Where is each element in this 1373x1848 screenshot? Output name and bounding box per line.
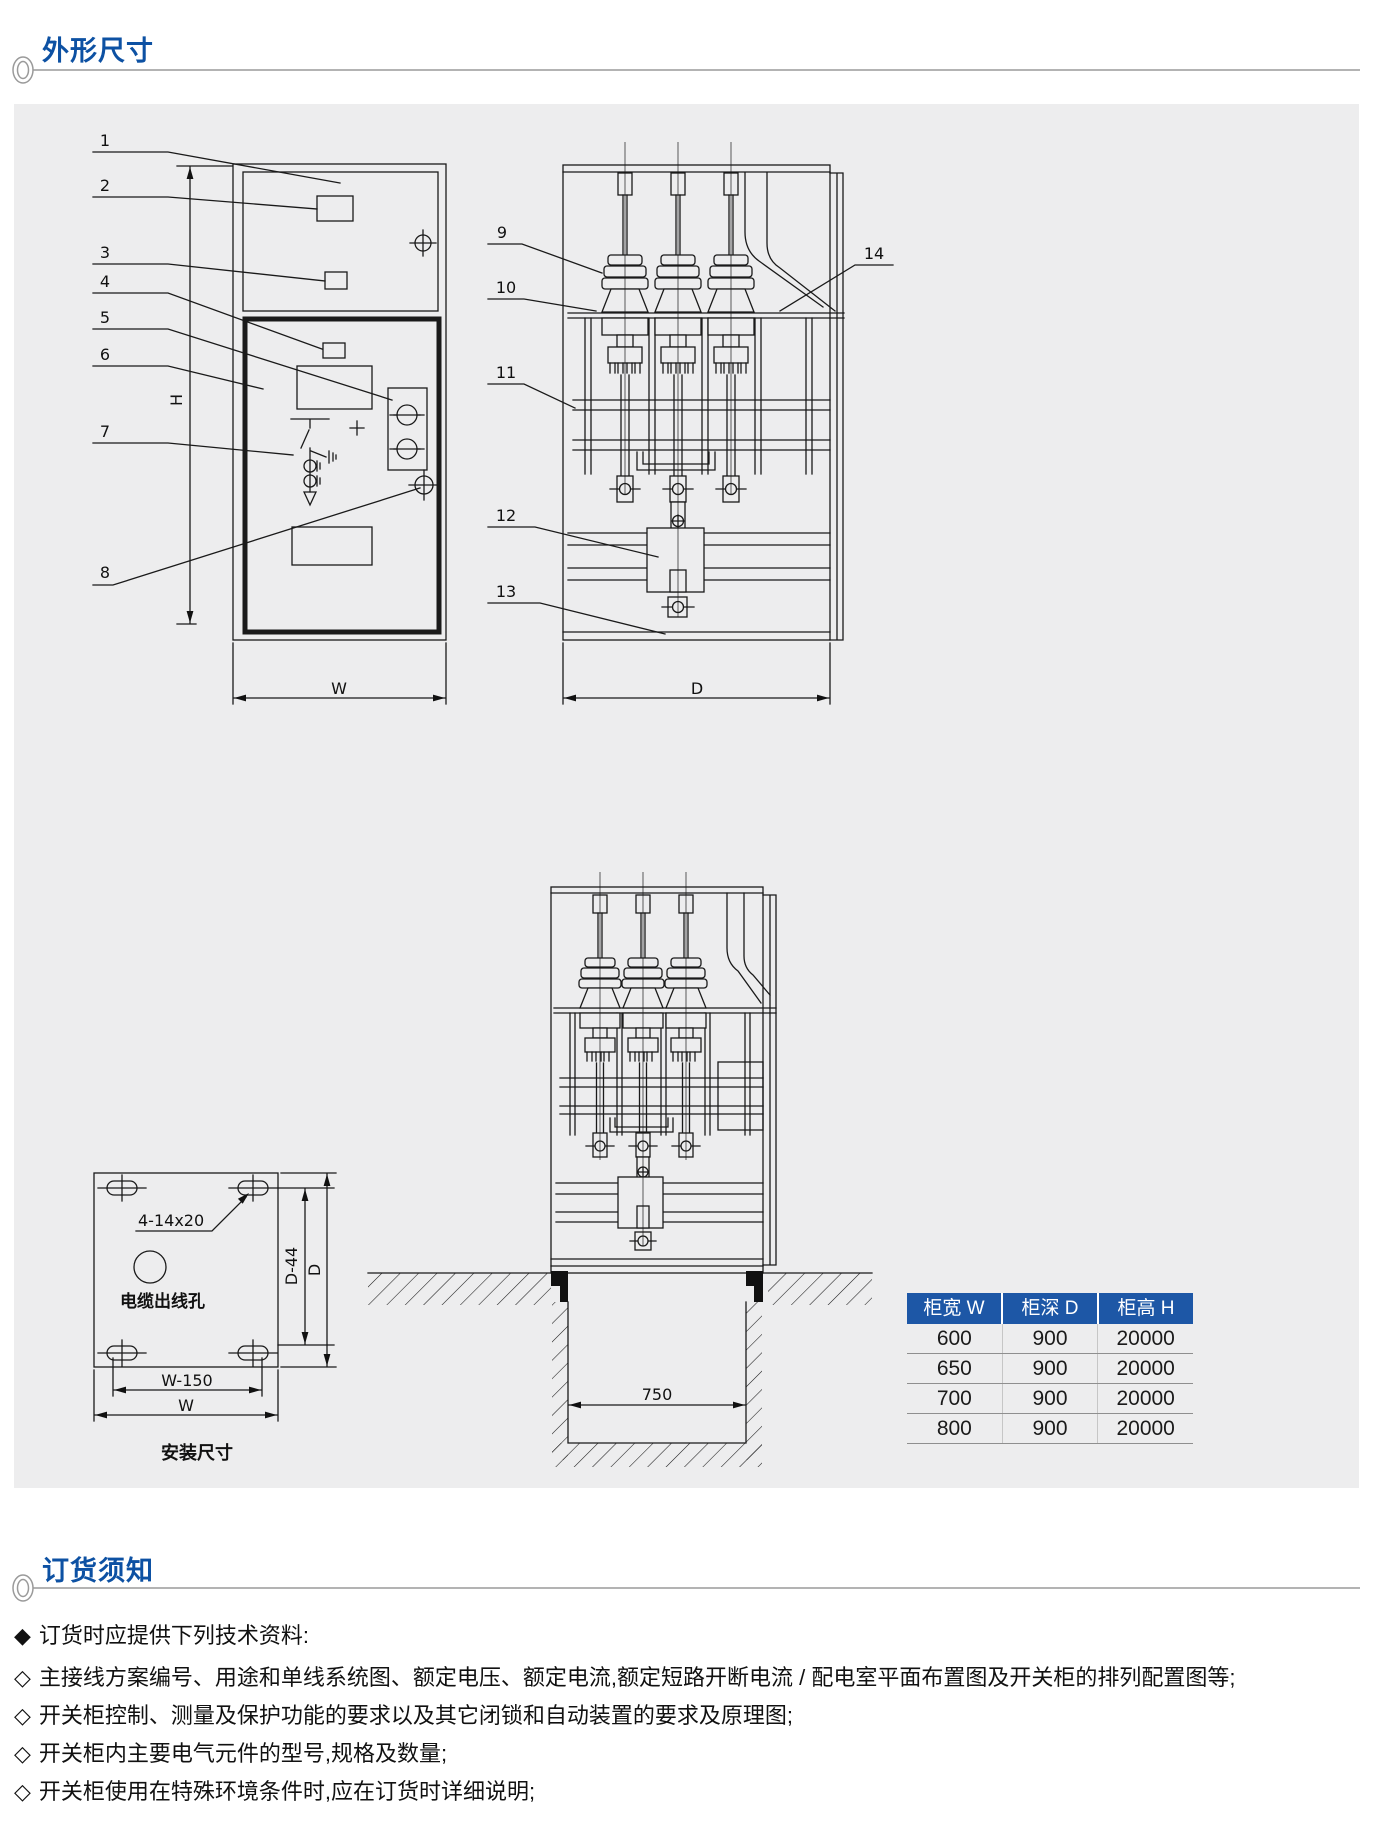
dim-label-w-install: W xyxy=(178,1396,194,1415)
part-label-4: 4 xyxy=(100,272,110,291)
part-label-8: 8 xyxy=(100,563,110,582)
catalog-page: { "page_titles": { "outline": "外形尺寸", "o… xyxy=(0,0,1373,1848)
table-cell: 900 xyxy=(1003,1414,1099,1443)
dimensions-table-header: 柜宽 W 柜深 D 柜高 H xyxy=(907,1293,1193,1324)
table-cell: 20000 xyxy=(1098,1384,1193,1413)
table-cell: 650 xyxy=(907,1354,1003,1383)
diamond-outline-icon: ◇ xyxy=(14,1741,31,1766)
dim-label-h: H xyxy=(167,394,186,406)
technical-drawings: 1 2 3 4 5 6 7 8 H W 9 10 11 12 13 14 D 7… xyxy=(0,0,1373,1848)
dim-label-w150: W-150 xyxy=(161,1371,212,1390)
diamond-filled-icon: ◆ xyxy=(14,1623,31,1648)
ordering-note-text: 主接线方案编号、用途和单线系统图、额定电压、额定电流,额定短路开断电流 / 配电… xyxy=(39,1665,1236,1690)
part-label-6: 6 xyxy=(100,345,110,364)
side-view-drawing xyxy=(488,142,893,704)
part-label-3: 3 xyxy=(100,243,110,262)
table-cell: 900 xyxy=(1003,1354,1099,1383)
table-cell: 20000 xyxy=(1098,1354,1193,1383)
table-header-cabinet-height: 柜高 H xyxy=(1099,1293,1193,1324)
table-cell: 700 xyxy=(907,1384,1003,1413)
slot-label: 4-14x20 xyxy=(138,1211,204,1230)
ordering-note-item: ◇主接线方案编号、用途和单线系统图、额定电压、额定电流,额定短路开断电流 / 配… xyxy=(14,1660,1236,1692)
dim-label-w: W xyxy=(331,679,347,698)
dim-label-d: D xyxy=(691,679,703,698)
ordering-note-text: 开关柜控制、测量及保护功能的要求以及其它闭锁和自动装置的要求及原理图; xyxy=(39,1703,793,1728)
table-cell: 20000 xyxy=(1098,1324,1193,1353)
cable-hole-label: 电缆出线孔 xyxy=(120,1291,205,1312)
part-label-5: 5 xyxy=(100,308,110,327)
ordering-intro-text: 订货时应提供下列技术资料: xyxy=(39,1623,309,1648)
ordering-note-item: ◇开关柜使用在特殊环境条件时,应在订货时详细说明; xyxy=(14,1774,535,1806)
section-title-ordering: 订货须知 xyxy=(42,1549,154,1588)
ordering-note-item: ◇开关柜控制、测量及保护功能的要求以及其它闭锁和自动装置的要求及原理图; xyxy=(14,1698,793,1730)
front-view-drawing xyxy=(93,152,446,704)
dim-label-d44: D-44 xyxy=(282,1247,301,1285)
part-label-7: 7 xyxy=(100,422,110,441)
part-label-10: 10 xyxy=(496,278,516,297)
ordering-note-item: ◇开关柜内主要电气元件的型号,规格及数量; xyxy=(14,1736,447,1768)
table-header-cabinet-depth: 柜深 D xyxy=(1003,1293,1099,1324)
ordering-note-text: 开关柜使用在特殊环境条件时,应在订货时详细说明; xyxy=(39,1779,535,1804)
table-header-cabinet-width: 柜宽 W xyxy=(907,1293,1003,1324)
dim-label-750: 750 xyxy=(642,1385,673,1404)
dimensions-table: 柜宽 W 柜深 D 柜高 H 600 900 20000 650 900 200… xyxy=(907,1293,1193,1444)
diamond-outline-icon: ◇ xyxy=(14,1779,31,1804)
foundation-view-drawing xyxy=(368,872,872,1467)
table-cell: 600 xyxy=(907,1324,1003,1353)
part-label-1: 1 xyxy=(100,131,110,150)
section-title-outline: 外形尺寸 xyxy=(42,29,154,68)
ordering-note-text: 开关柜内主要电气元件的型号,规格及数量; xyxy=(39,1741,447,1766)
ordering-intro: ◆订货时应提供下列技术资料: xyxy=(14,1618,309,1650)
part-label-13: 13 xyxy=(496,582,516,601)
installation-caption: 安装尺寸 xyxy=(161,1442,233,1464)
drawing-labels: 1 2 3 4 5 6 7 8 H W 9 10 11 12 13 14 D 7… xyxy=(100,131,884,1464)
diamond-outline-icon: ◇ xyxy=(14,1703,31,1728)
table-row: 800 900 20000 xyxy=(907,1414,1193,1444)
part-label-11: 11 xyxy=(496,363,516,382)
diamond-outline-icon: ◇ xyxy=(14,1665,31,1690)
part-label-12: 12 xyxy=(496,506,516,525)
part-label-2: 2 xyxy=(100,176,110,195)
table-row: 700 900 20000 xyxy=(907,1384,1193,1414)
table-cell: 20000 xyxy=(1098,1414,1193,1443)
dim-label-d-install: D xyxy=(305,1264,324,1276)
part-label-14: 14 xyxy=(864,244,884,263)
table-cell: 800 xyxy=(907,1414,1003,1443)
table-cell: 900 xyxy=(1003,1324,1099,1353)
table-row: 600 900 20000 xyxy=(907,1324,1193,1354)
table-cell: 900 xyxy=(1003,1384,1099,1413)
table-row: 650 900 20000 xyxy=(907,1354,1193,1384)
part-label-9: 9 xyxy=(497,223,507,242)
